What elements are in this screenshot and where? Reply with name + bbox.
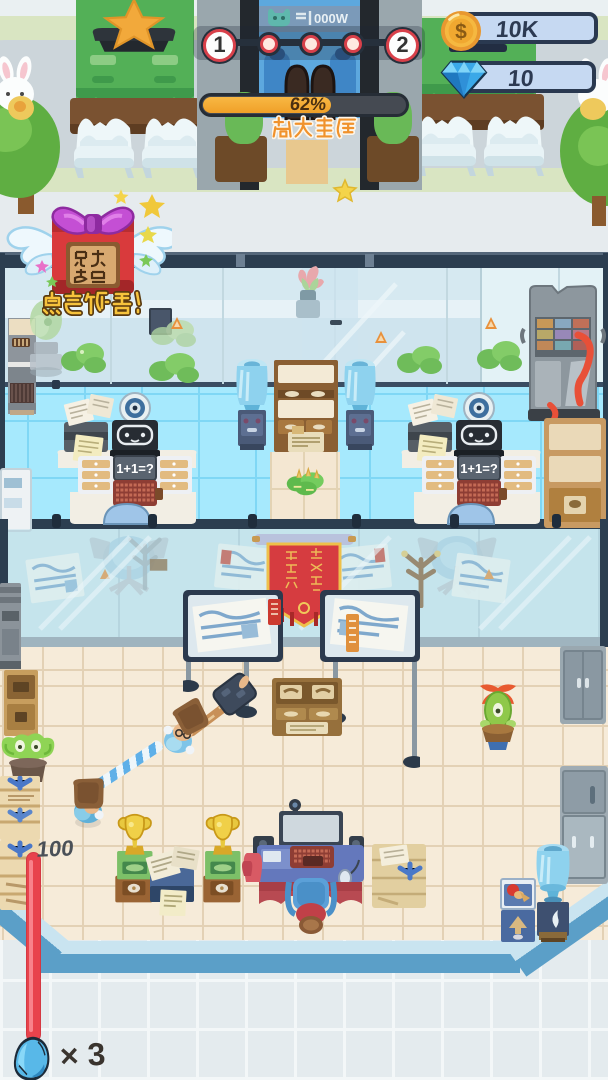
- svg-text:$: $: [455, 21, 467, 44]
- svg-text:1+1=?: 1+1=?: [116, 461, 154, 476]
- svg-text:000W: 000W: [314, 11, 349, 26]
